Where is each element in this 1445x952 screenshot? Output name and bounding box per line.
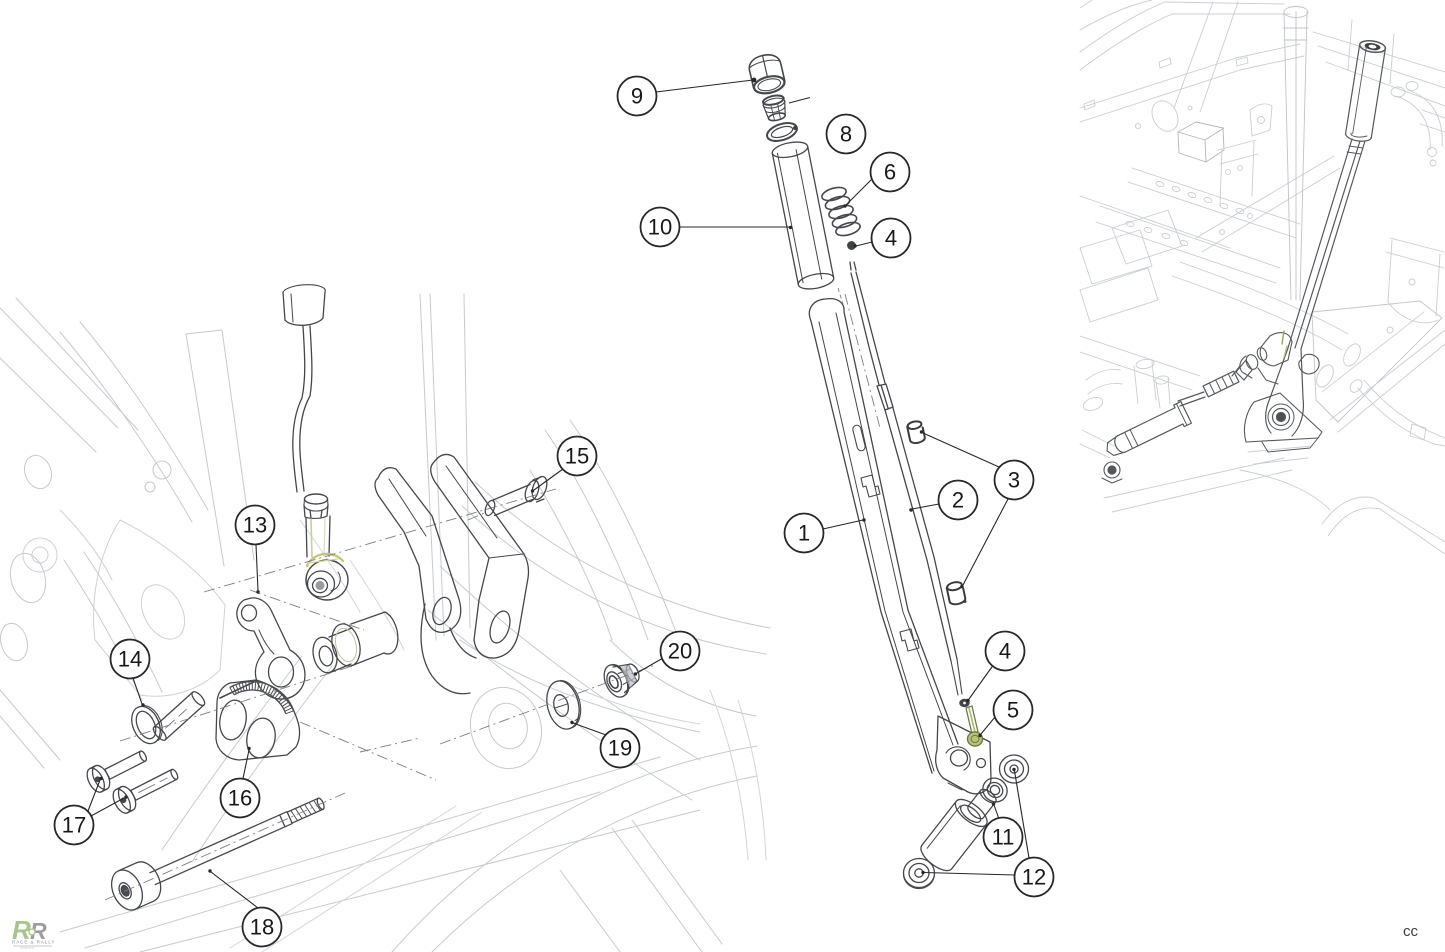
svg-text:5: 5	[1007, 698, 1019, 723]
svg-text:1: 1	[798, 521, 810, 546]
svg-text:2: 2	[952, 488, 964, 513]
svg-text:12: 12	[1022, 865, 1046, 890]
svg-text:rallyparts: rallyparts	[20, 946, 35, 950]
svg-text:13: 13	[243, 513, 267, 538]
svg-text:4: 4	[999, 639, 1011, 664]
svg-text:11: 11	[992, 825, 1015, 850]
svg-text:6: 6	[884, 160, 896, 185]
svg-text:9: 9	[631, 84, 643, 109]
svg-text:cc: cc	[1403, 923, 1419, 940]
svg-text:8: 8	[840, 122, 852, 147]
svg-text:17: 17	[62, 813, 86, 838]
svg-text:14: 14	[118, 647, 142, 672]
svg-text:RACE & RALLY: RACE & RALLY	[12, 940, 55, 945]
svg-text:10: 10	[648, 215, 672, 240]
svg-text:19: 19	[608, 736, 632, 761]
svg-text:18: 18	[250, 915, 274, 940]
svg-text:4: 4	[885, 226, 897, 251]
svg-text:20: 20	[668, 639, 692, 664]
svg-text:16: 16	[228, 786, 252, 811]
svg-text:3: 3	[1008, 468, 1020, 493]
svg-text:15: 15	[565, 444, 589, 469]
